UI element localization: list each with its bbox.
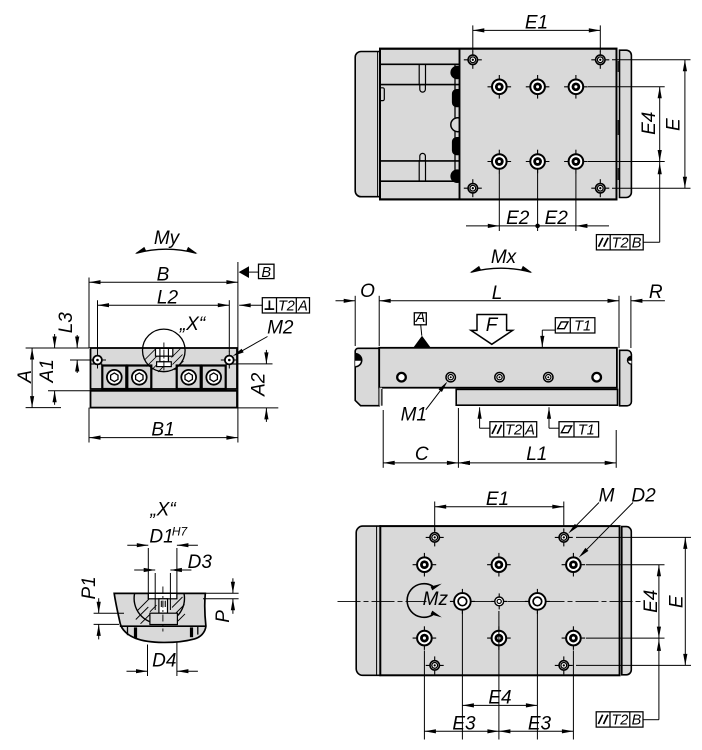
svg-text:B: B [632, 713, 642, 729]
svg-text:B: B [261, 265, 271, 281]
svg-text:E: E [667, 595, 688, 608]
svg-text:E3: E3 [452, 714, 476, 735]
svg-text:E2: E2 [506, 208, 530, 229]
svg-text:P: P [213, 610, 234, 623]
svg-text:D1: D1 [149, 526, 173, 547]
svg-text:A1: A1 [37, 359, 58, 383]
svg-text:A: A [15, 370, 36, 384]
svg-text:B: B [632, 235, 642, 251]
svg-text:„X“: „X“ [149, 499, 177, 520]
svg-text:Mx: Mx [491, 247, 518, 268]
svg-text:D2: D2 [631, 486, 656, 507]
svg-text:E1: E1 [525, 13, 548, 34]
svg-text:My: My [154, 228, 181, 249]
svg-text:E1: E1 [486, 489, 509, 510]
svg-text:L3: L3 [56, 312, 77, 334]
svg-text:E3: E3 [528, 714, 552, 735]
svg-text:T2: T2 [278, 299, 295, 315]
svg-text:T1: T1 [578, 423, 595, 439]
svg-text:L2: L2 [157, 287, 179, 308]
svg-text:M2: M2 [267, 317, 294, 338]
svg-text:E4: E4 [488, 688, 511, 709]
svg-text:T2: T2 [611, 713, 628, 729]
svg-text:M1: M1 [401, 404, 427, 425]
svg-text:E4: E4 [639, 112, 660, 135]
svg-text:Mz: Mz [423, 589, 449, 610]
svg-text:E4: E4 [641, 590, 662, 613]
svg-text:T2: T2 [505, 423, 522, 439]
svg-text:H7: H7 [172, 525, 189, 539]
svg-text:L: L [492, 283, 503, 304]
svg-text:M: M [599, 486, 615, 507]
svg-text:E2: E2 [545, 208, 569, 229]
svg-text:T2: T2 [612, 235, 629, 251]
svg-text:A: A [297, 299, 308, 315]
svg-text:L1: L1 [526, 444, 547, 465]
svg-text:„X“: „X“ [179, 314, 207, 335]
svg-text:E: E [664, 118, 685, 131]
svg-text:F: F [486, 315, 499, 336]
svg-text:A2: A2 [249, 372, 270, 397]
svg-text:O: O [360, 281, 375, 302]
svg-text:D4: D4 [152, 651, 176, 672]
svg-text:C: C [415, 444, 429, 465]
svg-text:R: R [649, 282, 663, 303]
svg-text:A: A [524, 423, 535, 439]
svg-text:T1: T1 [574, 319, 591, 335]
svg-text:B1: B1 [151, 420, 174, 441]
svg-text:A: A [415, 310, 426, 326]
svg-text:B: B [157, 264, 170, 285]
svg-text:P1: P1 [79, 576, 100, 599]
